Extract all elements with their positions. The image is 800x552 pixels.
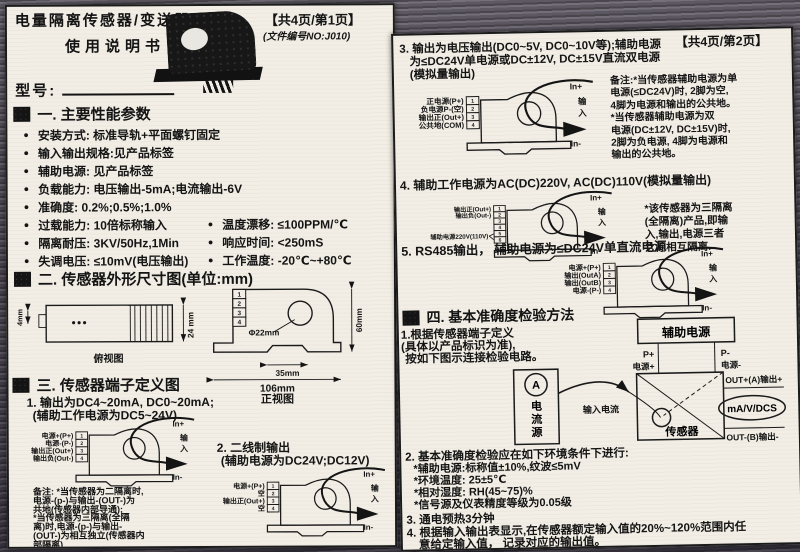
bullet-icon: ● xyxy=(208,219,213,229)
svg-text:1: 1 xyxy=(272,484,275,490)
out-plus-label: OUT+(A)输出+ xyxy=(725,373,782,385)
current-source-char3: 源 xyxy=(531,425,542,439)
out-minus-label: OUT-(B)输出- xyxy=(726,430,779,442)
svg-text:4: 4 xyxy=(472,123,475,129)
note-aux-power: 备注:*当传感器辅助电源为单电源(≤DC24V)时, 2脚为空,4脚为电源和输出… xyxy=(610,73,739,162)
terminal-label: 输出负(Out-) xyxy=(33,454,74,463)
section-marker-icon xyxy=(13,107,30,122)
bullet-icon: ● xyxy=(24,202,29,212)
svg-text:1: 1 xyxy=(237,292,241,299)
terminal-label: 公共地(COM) xyxy=(419,120,465,131)
wiring-diagram-3: 1 2 3 4 正电源(P+) 负电源P-(空) 输出正(Out+) 公共地(C… xyxy=(394,80,605,159)
bullet-icon: ● xyxy=(23,130,28,140)
bullet-icon: ● xyxy=(24,166,29,176)
svg-text:3: 3 xyxy=(80,449,83,455)
meter-label: mA/V/DCS xyxy=(727,403,777,415)
photo-pins xyxy=(203,80,233,93)
photo-body xyxy=(165,10,256,75)
section-3-heading: 三. 传感器端子定义图 xyxy=(12,374,179,396)
param-row: ●过载能力: 10倍标称输入 xyxy=(24,216,167,234)
param-row: ●温度漂移: ≤100PPM/℃ xyxy=(208,215,348,233)
svg-text:4: 4 xyxy=(608,288,611,294)
ammeter-symbol: A xyxy=(532,380,540,392)
dim-60mm: 60mm xyxy=(354,308,364,332)
terminal-label: 电源+(P+) xyxy=(233,481,265,490)
manual-page-2: 3. 输出为电压输出(DC0~5V, DC0~10V等);辅助电源 为≤DC24… xyxy=(391,26,800,552)
terminal-label: 输出正(Out+) xyxy=(223,496,265,505)
svg-text:4: 4 xyxy=(272,506,275,512)
svg-text:1: 1 xyxy=(471,99,474,105)
front-view-label: 正视图 xyxy=(261,392,294,406)
p-plus-label: P+ xyxy=(643,349,655,359)
method2-item: *信号源及仪表精度等级为0.05级 xyxy=(414,498,572,513)
section-1-title: 一. 主要性能参数 xyxy=(37,103,150,124)
p-minus-label: P- xyxy=(721,348,730,358)
terminal-label: 空 xyxy=(258,504,265,513)
terminal-block: 1 2 3 4 5 6 xyxy=(494,205,506,243)
note-isolation: 备注: *当传感器为二隔离时,电源-(p-)与输出-(OUT-)为共地(传感器内… xyxy=(33,487,145,549)
terminal-label: 空 xyxy=(258,489,265,498)
item2-line1: 2. 二线制输出 xyxy=(217,442,290,455)
bullet-icon: ● xyxy=(24,184,29,194)
svg-text:1: 1 xyxy=(608,265,611,271)
manual-page-1: 电量隔离传感器/变送器 使用说明书 【共4页/第1页】 (文件编号NO:J010… xyxy=(5,3,397,549)
param-row: ●响应时间: <250mS xyxy=(208,233,324,251)
model-label: 型号: xyxy=(15,83,56,100)
section-marker-icon xyxy=(12,378,29,393)
bullet-icon: ● xyxy=(24,238,29,248)
item3-line3: (模拟量输出) xyxy=(410,68,475,81)
param-row: ●辅助电源: 见产品标签 xyxy=(24,162,154,180)
section-marker-icon xyxy=(402,310,419,325)
terminal-block: 1 2 3 4 xyxy=(603,263,615,294)
item1-line1: 1. 输出为DC4~20mA, DC0~20mA; xyxy=(27,396,214,409)
item4-title: 4. 辅助工作电源为AC(DC)220V, AC(DC)110V(模拟量输出) xyxy=(400,174,711,193)
method4-line2: 意给定输入值， 记录对应的输出值。 xyxy=(419,536,606,552)
dim-35mm: 35mm xyxy=(276,368,300,378)
terminal-label: 电源-(P-) xyxy=(572,286,601,296)
aux-power-box-label: 辅助电源 xyxy=(662,324,711,340)
current-source-char2: 流 xyxy=(531,412,542,426)
dimension-drawing-side-view: 4mm 24 mm 俯视图 xyxy=(18,292,202,368)
hatch-pattern xyxy=(135,305,168,342)
sensor-box-label: 传感器 xyxy=(664,424,699,439)
param-row: ●输入输出规格:见产品标签 xyxy=(23,144,174,162)
wiring-diagram-2: 1 2 3 4 电源+(P+) 空 输出正(Out+) 空 xyxy=(201,468,395,539)
param-row: ●工作温度: -20℃~+80℃ xyxy=(208,251,352,269)
param-row: ●失调电压: ≤10mV(电压输出) xyxy=(24,252,188,270)
doc-number: (文件编号NO:J010) xyxy=(263,32,350,43)
p-plus-cn-label: 电源+ xyxy=(632,360,654,371)
page-badge-1: 【共4页/第1页】 xyxy=(265,13,361,27)
svg-text:2: 2 xyxy=(80,441,83,447)
model-blank-line xyxy=(62,80,174,95)
svg-text:2: 2 xyxy=(272,491,275,497)
p-minus-cn-label: 电源- xyxy=(721,359,741,370)
dim-24mm: 24 mm xyxy=(186,312,195,338)
side-view-label: 俯视图 xyxy=(93,352,123,365)
svg-text:4: 4 xyxy=(80,456,83,462)
param-row: ●准确度: 0.2%;0.5%;1.0% xyxy=(24,198,172,216)
terminal-block: 1 2 3 4 xyxy=(466,97,479,129)
param-row: ●安装方式: 标准导轨+平面螺钉固定 xyxy=(23,126,220,144)
terminal-label: 辅助电源220V(110V) xyxy=(430,231,488,241)
manual-subtitle: 使用说明书 xyxy=(65,39,165,55)
terminal-block: 1 2 3 4 xyxy=(76,432,88,462)
svg-text:3: 3 xyxy=(238,310,242,317)
wiring-diagram-1: 1 2 3 4 电源+(P+) 电源-(P-) 输出正(Out+) 输出负(Ou… xyxy=(9,418,205,489)
svg-text:2: 2 xyxy=(471,107,474,113)
item2-line2: (辅助电源为DC24V;DC12V) xyxy=(221,454,370,467)
svg-text:2: 2 xyxy=(608,273,611,279)
terminal-block: 1 2 3 4 xyxy=(267,482,279,512)
page-badge-2: 【共4页/第2页】 xyxy=(675,35,768,50)
section-marker-icon xyxy=(14,272,31,287)
section-1-heading: 一. 主要性能参数 xyxy=(13,103,150,125)
svg-text:3: 3 xyxy=(608,280,611,286)
svg-text:3: 3 xyxy=(272,499,275,505)
svg-text:3: 3 xyxy=(471,115,474,121)
svg-text:4: 4 xyxy=(238,319,242,326)
param-row: ●隔离耐压: 3KV/50Hz,1Min xyxy=(24,234,179,252)
terminal-block: 1 2 3 4 xyxy=(233,289,246,326)
current-source-char1: 电 xyxy=(531,399,542,413)
bullet-icon: ● xyxy=(208,255,213,265)
model-row: 型号: xyxy=(15,80,174,99)
dim-4mm: 4mm xyxy=(15,308,24,326)
dimension-drawing-front-view: 1 2 3 4 Φ22mm 35mm 106mm 正视图 60mm xyxy=(206,283,371,404)
svg-text:2: 2 xyxy=(237,301,241,308)
section-3-title: 三. 传感器端子定义图 xyxy=(36,374,179,396)
method3-title: 3. 通电预热3分钟 xyxy=(406,513,494,527)
param-row: ●负载能力: 电压输出-5mA;电流输出-6V xyxy=(24,180,243,198)
svg-text:1: 1 xyxy=(80,434,83,440)
bullet-icon: ● xyxy=(208,237,213,247)
dim-diameter: Φ22mm xyxy=(249,327,280,337)
input-current-label: 输入电流 xyxy=(583,403,619,415)
bullet-icon: ● xyxy=(23,148,28,158)
bullet-icon: ● xyxy=(24,220,29,230)
verification-circuit-diagram: 辅助电源 P+ 电源+ P- 电源- A 电 流 源 传感器 输入电流 OUT+… xyxy=(509,314,793,446)
bullet-icon: ● xyxy=(24,256,29,266)
